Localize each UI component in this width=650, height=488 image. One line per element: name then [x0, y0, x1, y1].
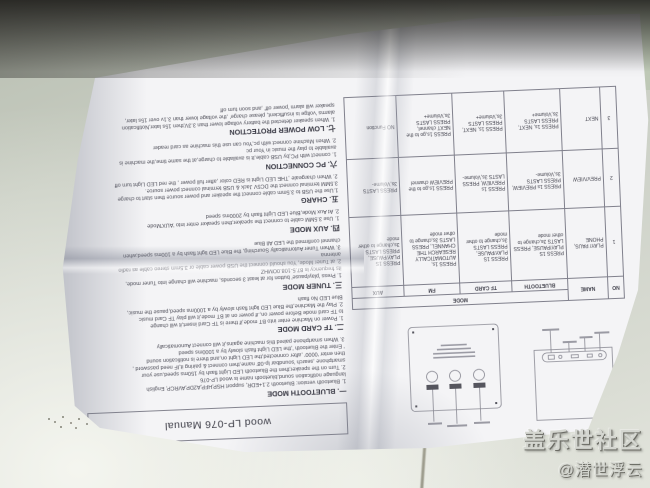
- table-row: 2 PREV/VIEW PRESS 1s PREVIEW, PRESS LAST…: [346, 148, 620, 217]
- manual-content-rotated: NO NAME MODE BLUETOOTH TF CARD FM AUX 1 …: [72, 21, 630, 447]
- cell: NO Function: [344, 96, 399, 160]
- cell: PRESS LASTS 3s,Volume-: [346, 157, 400, 217]
- cell: PRESS 1s, NEXT, PRESS LASTS 3s,Volume+: [452, 91, 507, 155]
- cell: PRESS 1s, NEXT, PRESS LASTS 3s,Volume+: [504, 89, 563, 153]
- buttons-panel-diagram: [400, 314, 509, 430]
- watermark-community-name: 盖乐世社区: [523, 423, 643, 455]
- manual-right-half: wood LP-076 Manual 一. BLUETOOTH MODE 1. …: [68, 32, 353, 447]
- row-name: NEXT: [560, 87, 603, 151]
- mode-col-tfcard: TF CARD: [460, 281, 512, 294]
- manual-title: wood LP-076 Manual: [164, 416, 271, 432]
- watermark: 盖乐世社区 @潜世浮云: [523, 423, 643, 480]
- row-no: 3: [600, 86, 619, 149]
- cell: PRESS 1s PREVIEW, PRESS LASTS 3s,Volume-: [454, 153, 508, 213]
- photo-scene: NO NAME MODE BLUETOOTH TF CARD FM AUX 1 …: [0, 0, 650, 488]
- cell: PRESS 1s, AUTOMATICALLY RESEARCH THE CHA…: [401, 213, 460, 285]
- cell: PRESS 1S PLAY/PAUSE, PRESS LASTS 3s,chan…: [457, 211, 512, 283]
- col-name-header: NAME: [568, 277, 609, 301]
- mode-col-aux: AUX: [352, 285, 404, 298]
- pavement-speckles: [48, 418, 50, 420]
- mode-col-bluetooth: BLUETOOTH: [512, 278, 568, 291]
- buttons-caption-illegible: [433, 343, 476, 358]
- section-bluetooth-mode: 一. BLUETOOTH MODE 1. Bluetooth version: …: [80, 335, 346, 407]
- section-tf-card-mode: 二. TF CARD MODE 1. Power on Machine ente…: [79, 292, 344, 343]
- manual-paper: NO NAME MODE BLUETOOTH TF CARD FM AUX 1 …: [52, 6, 650, 464]
- watermark-username: @潜世浮云: [523, 456, 643, 480]
- table-row: 3 NEXT PRESS 1s, NEXT, PRESS LASTS 3s,Vo…: [344, 86, 618, 159]
- cell: PRESS 1S PLAY/PAUSE, PRESS LASTS 3s,chan…: [349, 215, 404, 287]
- speaker-diagrams: [354, 309, 624, 432]
- table-row: 1 PLAY/ PAUS, PHONE PRESS 1S PLAY/PAUSE,…: [349, 206, 624, 287]
- row-no: 1: [605, 206, 624, 277]
- row-name: PLAY/ PAUS, PHONE: [565, 207, 608, 279]
- col-no-header: NO: [608, 276, 625, 299]
- controls-table: NO NAME MODE BLUETOOTH TF CARD FM AUX 1 …: [343, 86, 625, 310]
- cell: PRESS 1s PREVIEW, PRESS LASTS 3s,Volume-: [506, 151, 564, 211]
- cell: PRESS 1s,go to the PREVIEW channel: [398, 155, 456, 215]
- cell: PRESS 1s,go to the NEXT channel, PRESS L…: [396, 93, 455, 157]
- section-tuner-mode: 三. TUNER MODE 1. Press 'play/pause' butt…: [76, 235, 342, 300]
- manual-left-half: NO NAME MODE BLUETOOTH TF CARD FM AUX 1 …: [342, 21, 631, 436]
- buttons-labels-illegible: [428, 420, 490, 428]
- cell: PRESS 1S PLAY/PAUSE, PRESS LASTS 3s,chan…: [509, 209, 568, 281]
- mode-col-fm: FM: [404, 283, 460, 296]
- row-name: PREV/VIEW: [562, 149, 604, 209]
- row-no: 2: [602, 148, 620, 207]
